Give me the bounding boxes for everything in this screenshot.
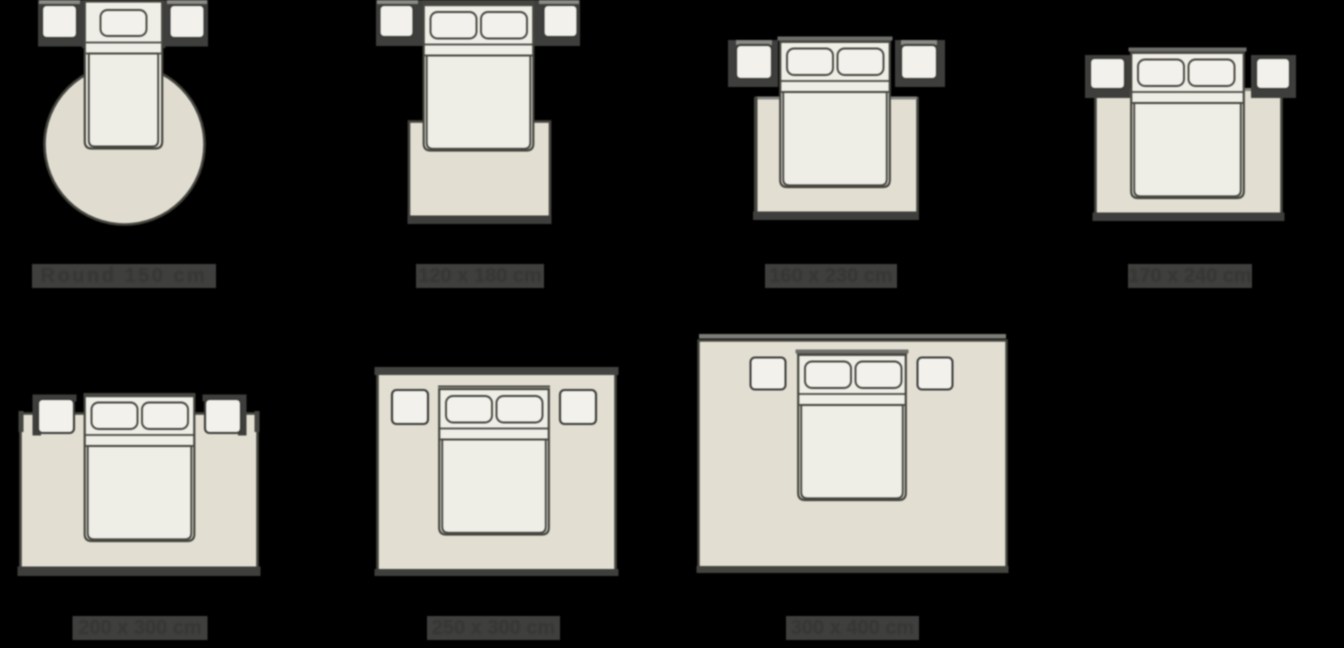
svg-text:200 x 300 cm: 200 x 300 cm [78, 617, 201, 639]
svg-text:250 x 300 cm: 250 x 300 cm [432, 617, 555, 639]
svg-text:Round 150 cm: Round 150 cm [41, 265, 208, 287]
svg-text:120 x 180 cm: 120 x 180 cm [418, 265, 541, 287]
svg-text:160 x 230 cm: 160 x 230 cm [769, 265, 892, 287]
svg-text:300 x 400 cm: 300 x 400 cm [791, 617, 914, 639]
svg-text:170 x 240 cm: 170 x 240 cm [1128, 265, 1251, 287]
